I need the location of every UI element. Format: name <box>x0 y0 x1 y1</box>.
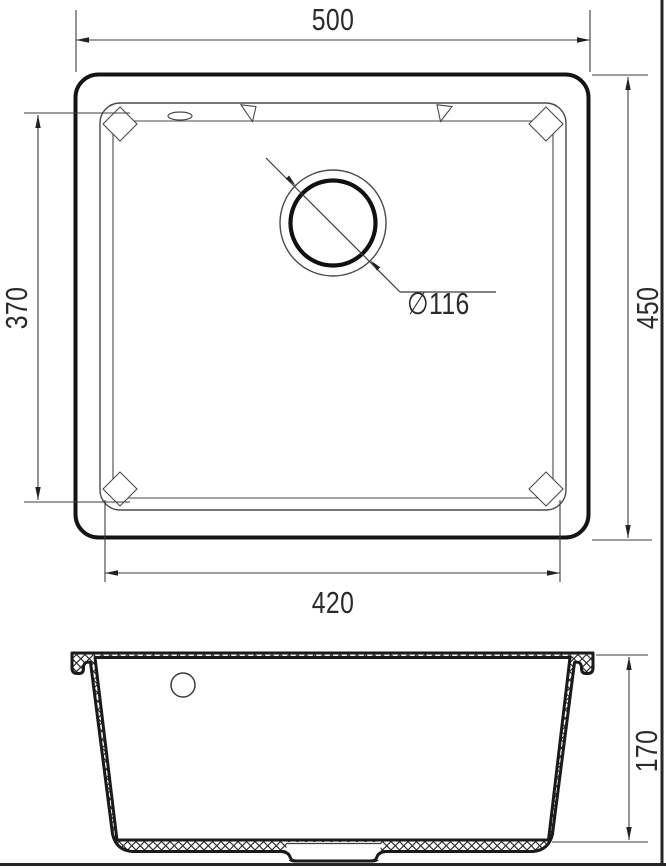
drain-recess-mask <box>287 842 381 860</box>
arrowhead <box>105 570 118 575</box>
arrowhead <box>625 525 630 538</box>
section-material <box>72 653 593 861</box>
arrowhead <box>626 827 631 840</box>
dim-overall-depth: 450 <box>592 75 665 540</box>
dim-label-overall-depth: 450 <box>630 287 664 330</box>
arrowhead <box>76 37 89 42</box>
overflow-hole-section <box>171 673 195 697</box>
arrowhead <box>625 77 630 90</box>
dim-label-bowl-width: 420 <box>312 585 355 619</box>
technical-drawing-page: ∅116 500 450 370 <box>0 0 666 868</box>
sink-drawing-canvas: ∅116 500 450 370 <box>0 0 666 868</box>
dim-label-bowl-height: 170 <box>629 730 663 773</box>
overflow-hole <box>168 112 192 120</box>
sink-outer-outline <box>76 75 589 538</box>
dim-label-drain-diameter: ∅116 <box>407 286 470 320</box>
section-view: 170 <box>72 653 664 861</box>
arrowhead <box>547 570 560 575</box>
dim-top-width: 500 <box>76 2 590 72</box>
arrowhead <box>35 487 40 500</box>
dim-label-bowl-depth: 370 <box>0 287 34 330</box>
arrowhead <box>35 115 40 128</box>
top-view: ∅116 500 450 370 <box>0 2 665 619</box>
arrowhead <box>577 37 590 42</box>
dim-label-top-width: 500 <box>312 2 355 36</box>
arrowhead <box>626 657 631 670</box>
